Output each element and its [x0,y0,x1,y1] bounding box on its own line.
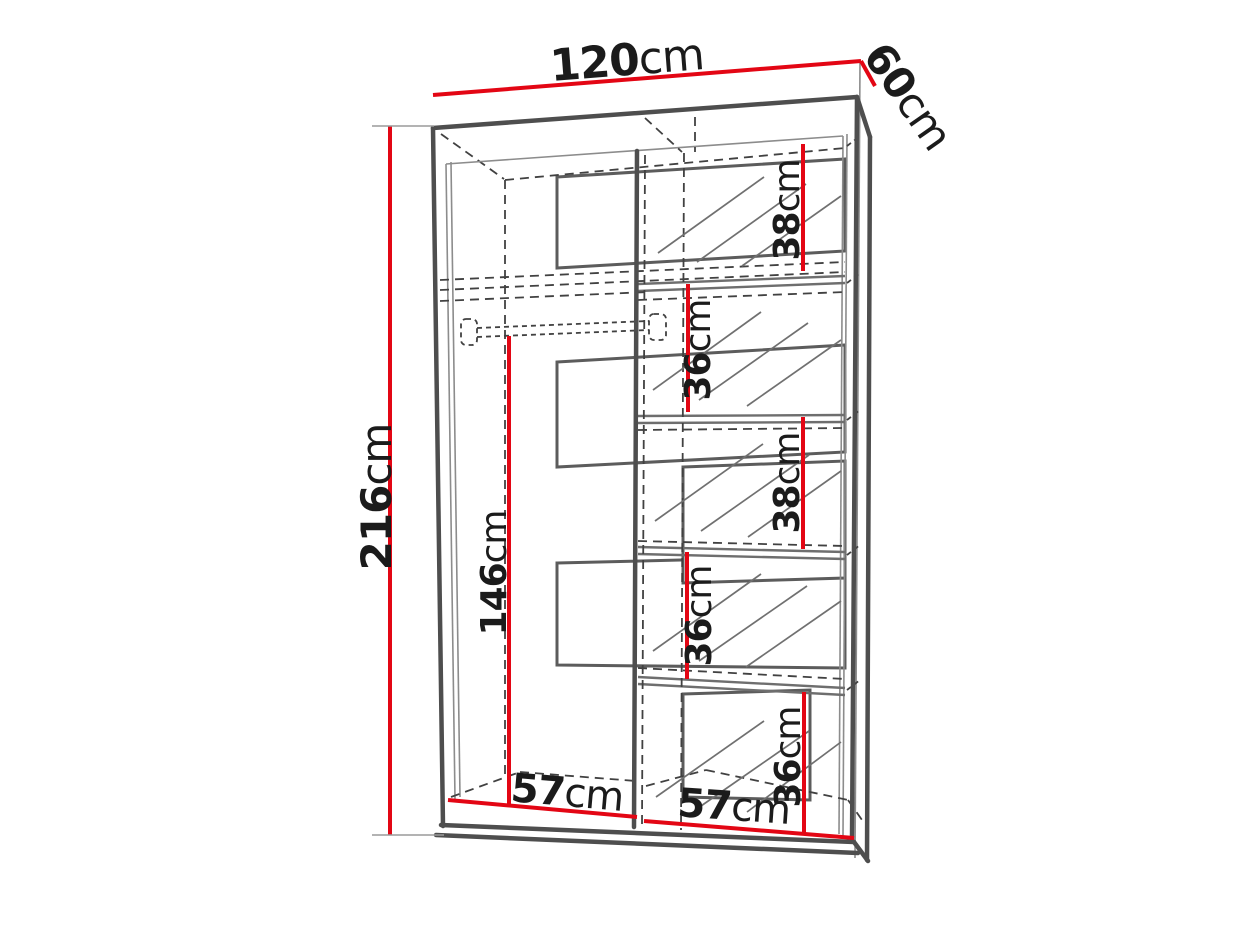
height-label: 216cm [352,424,401,571]
rail-shelf-hidden-edge [440,292,648,301]
left-section-width-label: 57cm [509,765,625,821]
shelf-line [638,422,845,423]
shelf-back-hidden-edge [638,292,845,300]
width-label: 120cm [548,29,705,92]
right-back-edge [867,137,870,860]
shelf-gap-label-3: 38cm [767,433,808,534]
rail-tube-edge [477,330,649,337]
mirror-panel [683,461,845,583]
inner-left-wall-edge [446,164,455,799]
rail-bracket-left [461,319,477,345]
hanging-height-label: 146cm [474,510,515,635]
shelf-gap-label-2: 36cm [678,300,719,401]
shelf-back-hidden-edge [638,668,845,679]
center-divider-panel [634,151,637,827]
shelf-gap-label-5: 36cm [768,707,809,808]
diagram-canvas: 120cm 60cm 216cm 146cm 57cm 57cm 38cm 36… [0,0,1244,933]
shelf-gap-label-4: 36cm [679,566,720,667]
shelf-gap-label-1: 38cm [767,160,808,261]
rail-tube-edge [477,321,649,328]
shelf-line [638,415,845,416]
wardrobe-dimension-diagram: 120cm 60cm 216cm 146cm 57cm 57cm 38cm 36… [0,0,1244,933]
left-front-edge [433,128,443,826]
inner-left-wall-edge [451,162,460,797]
divider-top-recede-edge [645,118,682,152]
rail-shelf-hidden-edge [440,272,845,290]
shelf-line [638,283,845,291]
top-front-edge [433,97,857,128]
rail-bracket-right [649,314,666,340]
